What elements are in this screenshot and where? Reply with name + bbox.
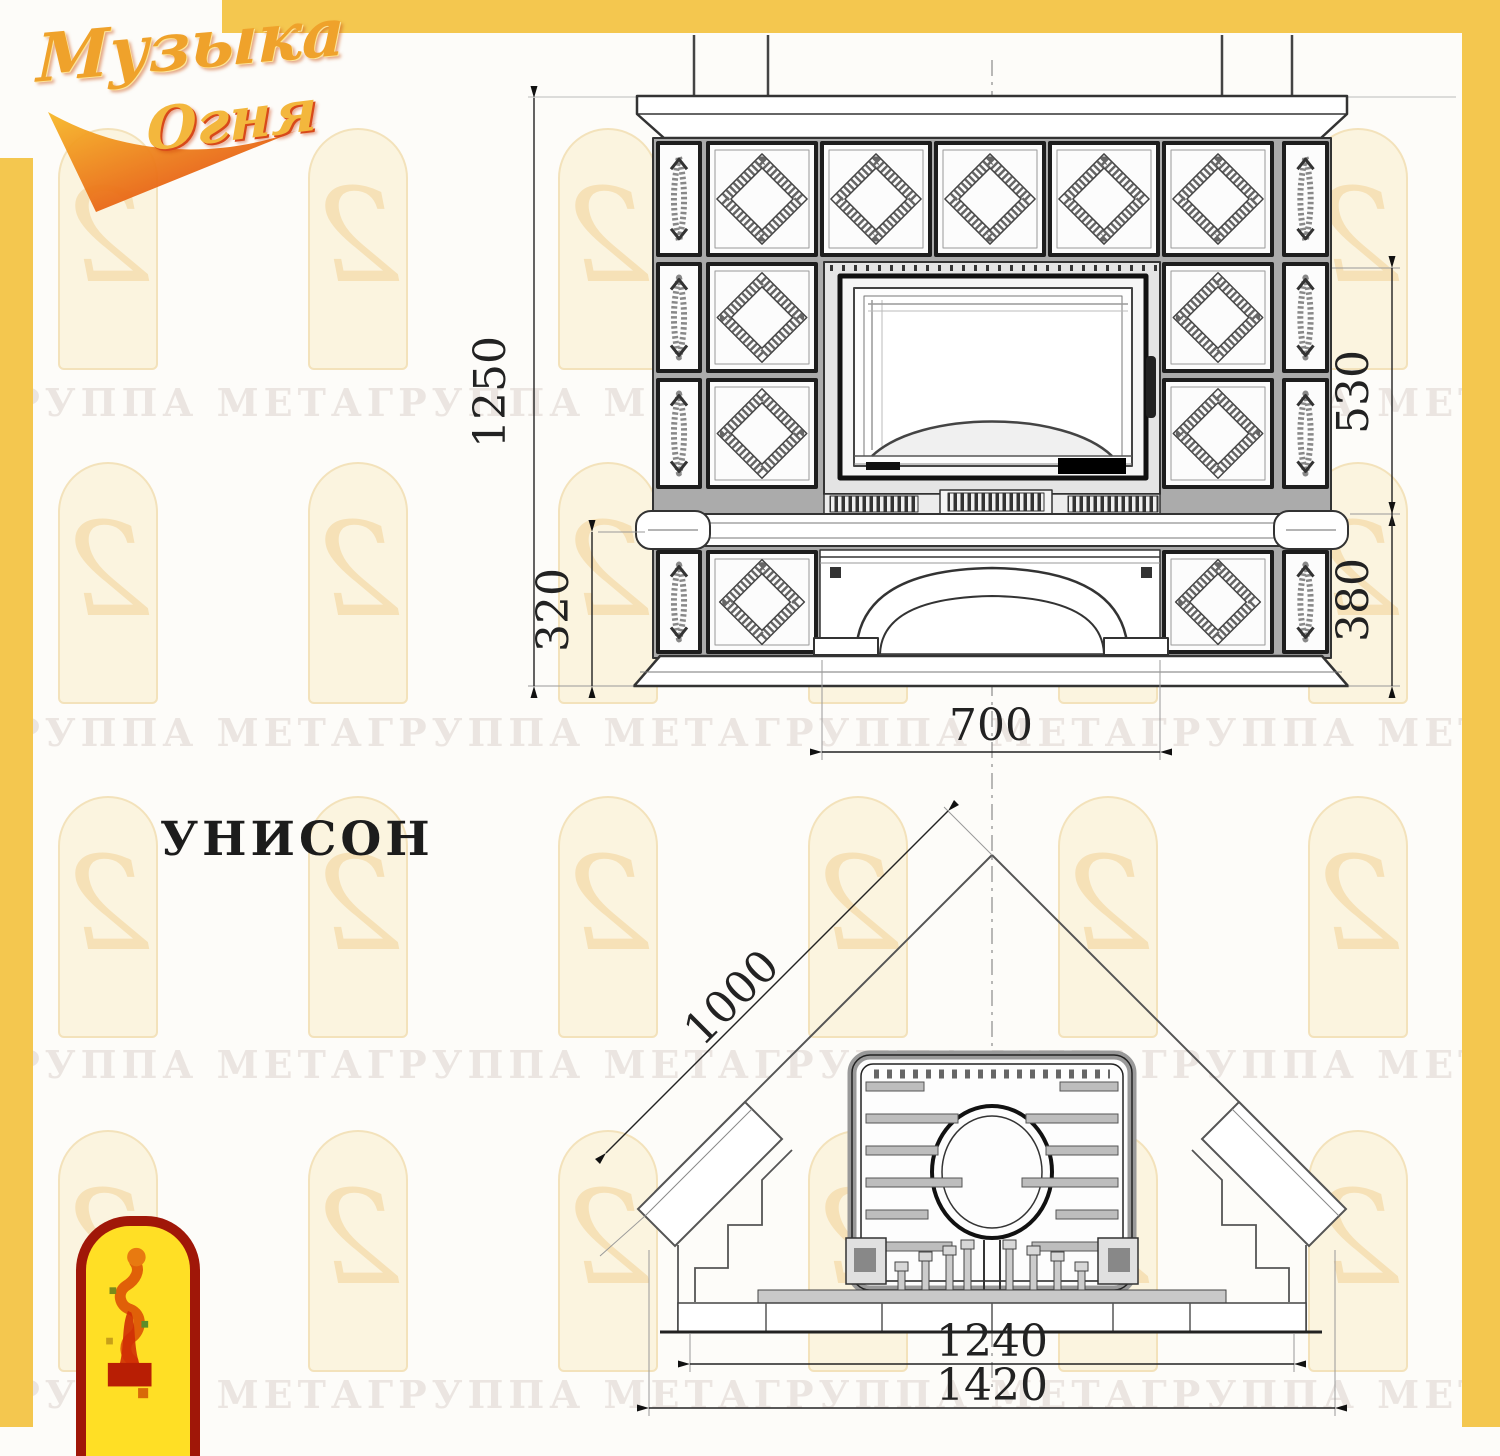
page: { "page": { "title_label": "УНИСОН" }, "… <box>0 0 1500 1427</box>
dim-firebox-zone: 530 <box>1328 350 1379 434</box>
control-plate <box>1058 458 1126 474</box>
dim-base-left: 320 <box>528 568 579 652</box>
hearth-strip <box>758 1290 1226 1303</box>
portal-foot-right <box>1104 638 1168 655</box>
tile-diamond <box>1164 380 1272 487</box>
tile-narrow <box>1284 143 1327 255</box>
tile-diamond <box>1164 143 1272 255</box>
fireplace-technical-drawing: 1250 320 530 380 700 <box>0 0 1500 1427</box>
base-plinth <box>634 656 1348 686</box>
vent-grille-left <box>830 496 918 512</box>
tile-narrow <box>1284 552 1327 652</box>
dim-portal-width: 700 <box>949 700 1033 751</box>
tile-diamond <box>822 143 930 255</box>
door-handle <box>1146 356 1156 418</box>
tile-narrow <box>658 552 700 652</box>
tile-diamond <box>1164 552 1272 652</box>
vent-grille-right <box>1068 496 1158 512</box>
tile-narrow <box>658 380 700 487</box>
tile-diamond <box>708 552 816 652</box>
tile-narrow <box>1284 380 1327 487</box>
tile-diamond <box>708 380 816 487</box>
dim-overall-width: 1420 <box>936 1360 1048 1411</box>
shelf-molding <box>636 511 1348 549</box>
tile-diamond <box>1164 264 1272 371</box>
plan-view <box>638 855 1346 1332</box>
tile-narrow <box>658 264 700 371</box>
tile-diamond <box>1050 143 1158 255</box>
tile-narrow <box>1284 264 1327 371</box>
portal <box>814 550 1168 655</box>
tile-diamond <box>708 143 816 255</box>
firebox <box>824 262 1160 514</box>
front-view <box>528 35 1456 686</box>
tile-diamond <box>936 143 1044 255</box>
dim-overall-height: 1250 <box>465 336 516 448</box>
vent-grille-center <box>948 493 1044 511</box>
dim-wall-length: 1000 <box>674 940 789 1055</box>
chimney-pipes <box>694 35 1292 96</box>
firebox-plan <box>846 1055 1138 1312</box>
tile-diamond <box>708 264 816 371</box>
dim-base-right: 380 <box>1328 558 1379 642</box>
flue-circle <box>932 1106 1052 1238</box>
cornice <box>637 96 1347 138</box>
portal-foot-left <box>814 638 878 655</box>
tile-narrow <box>658 143 700 255</box>
